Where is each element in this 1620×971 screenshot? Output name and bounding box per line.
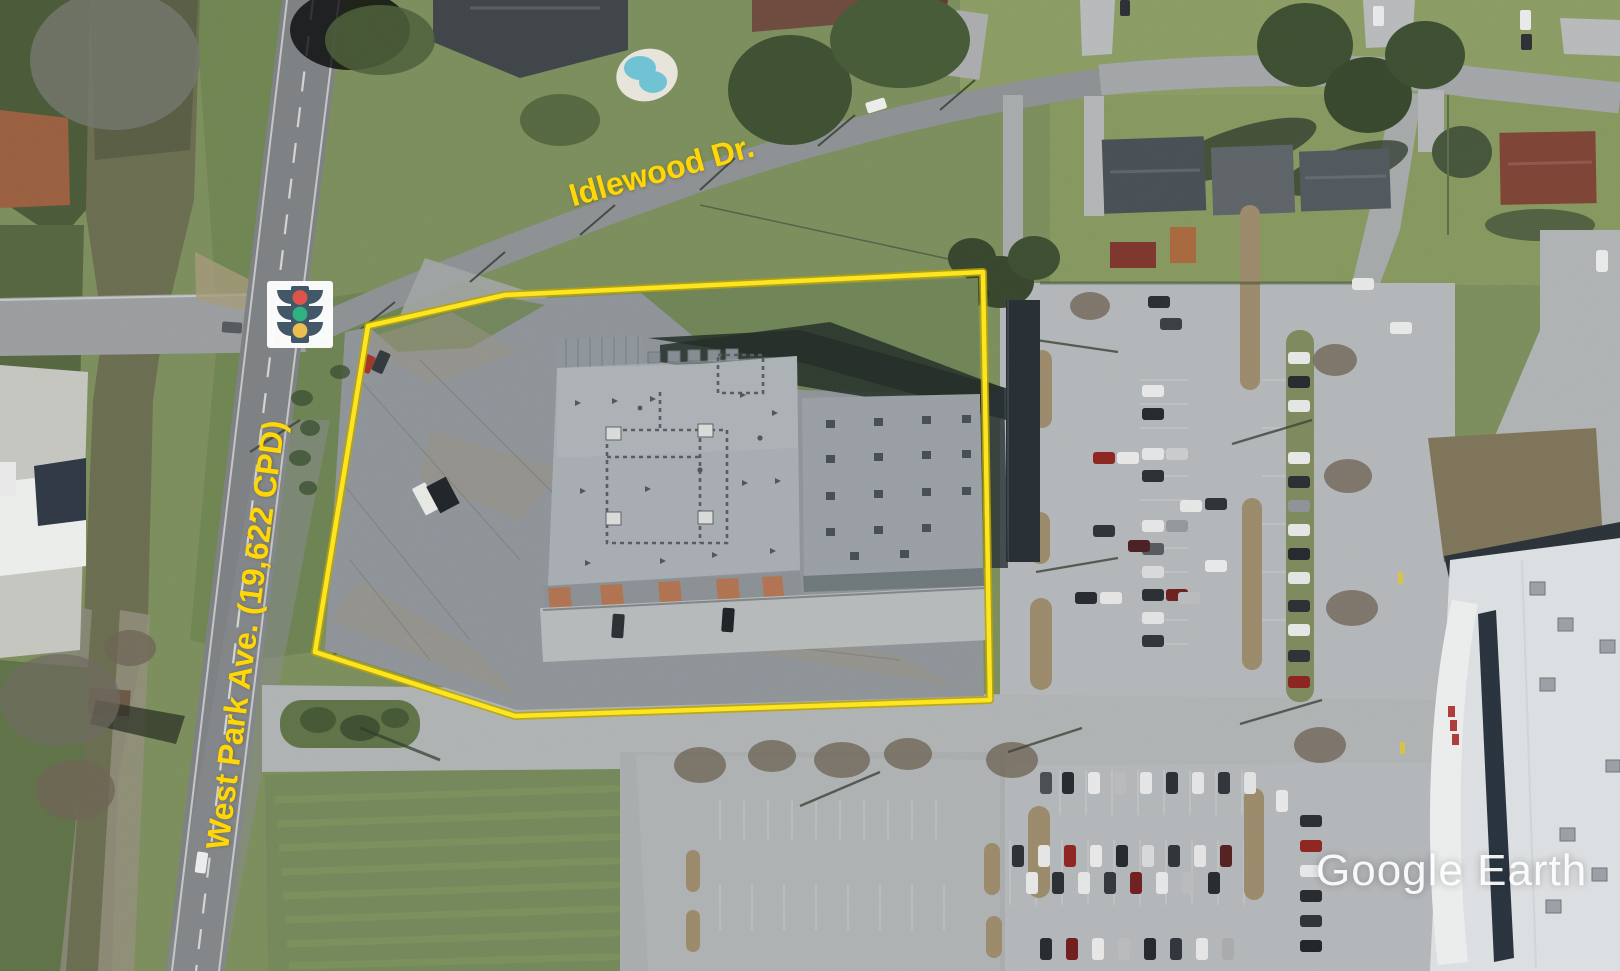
google-earth-watermark: Google Earth xyxy=(1316,846,1587,896)
map-canvas[interactable]: Idlewood Dr. West Park Ave. (19,622 CPD)… xyxy=(0,0,1620,971)
grain-overlay xyxy=(0,0,1620,971)
